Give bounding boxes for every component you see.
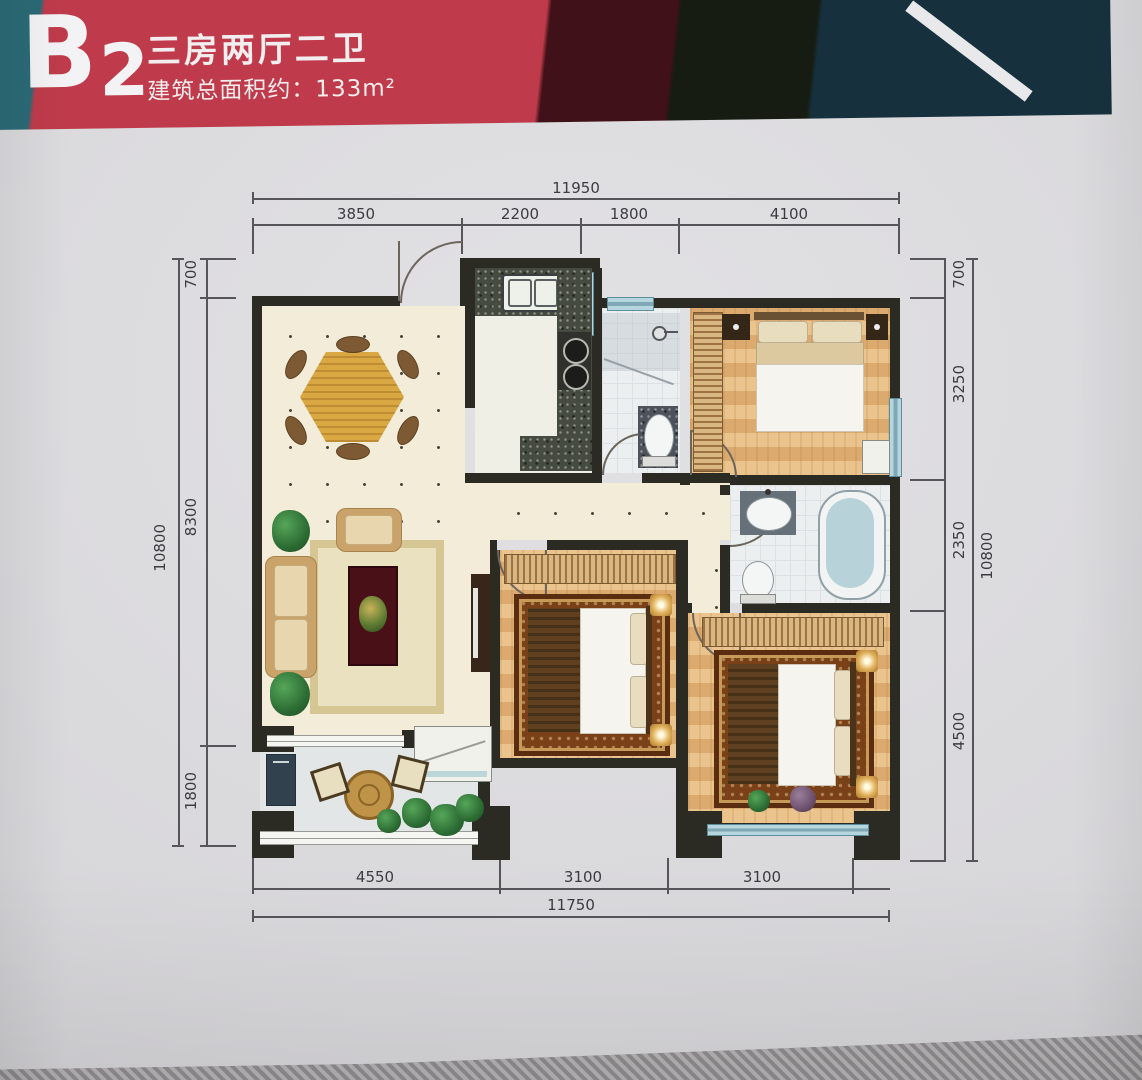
dim-tick bbox=[966, 860, 978, 862]
bathtub-water bbox=[826, 498, 874, 588]
dim-tick bbox=[252, 910, 254, 922]
dim-label: 4550 bbox=[356, 868, 394, 886]
nightstand-lamp bbox=[856, 650, 878, 672]
dining-chair bbox=[336, 336, 370, 353]
toilet-icon bbox=[644, 414, 674, 460]
bed bbox=[756, 364, 864, 432]
burner bbox=[563, 364, 589, 390]
dim-tick bbox=[172, 845, 184, 847]
wardrobe bbox=[504, 554, 676, 584]
wall bbox=[465, 268, 475, 408]
bed bbox=[778, 664, 836, 786]
cabinet-line bbox=[273, 761, 289, 763]
dim-tick bbox=[200, 297, 236, 299]
dim-tick bbox=[910, 297, 946, 299]
wardrobe bbox=[702, 617, 884, 647]
dim-label: 4500 bbox=[950, 712, 968, 750]
nightstand-lamp bbox=[856, 776, 878, 798]
wall bbox=[465, 473, 602, 483]
bathtub-icon bbox=[818, 490, 886, 600]
dim-tick bbox=[910, 479, 946, 481]
dim-tick bbox=[252, 218, 254, 254]
door-leaf bbox=[690, 430, 692, 475]
wall bbox=[490, 540, 497, 550]
dim-label: 1800 bbox=[610, 205, 648, 223]
dim-label: 3250 bbox=[950, 365, 968, 403]
nightstand bbox=[866, 314, 888, 340]
dim-tick bbox=[910, 860, 946, 862]
wall bbox=[720, 545, 730, 613]
dim-tick bbox=[200, 845, 236, 847]
pillow bbox=[812, 321, 862, 343]
table-flowers-icon bbox=[359, 596, 387, 632]
dim-tick bbox=[888, 910, 890, 922]
dim-label: 11750 bbox=[547, 896, 595, 914]
wall bbox=[730, 475, 900, 485]
wall bbox=[890, 308, 900, 860]
dim-line bbox=[972, 258, 974, 862]
sofa-cushion bbox=[274, 565, 308, 617]
dim-label: 3850 bbox=[337, 205, 375, 223]
dim-label: 10800 bbox=[151, 524, 169, 572]
dim-label: 11950 bbox=[552, 179, 600, 197]
bed-blanket bbox=[756, 342, 864, 366]
kitchen-sink bbox=[502, 274, 562, 312]
mini-hallway bbox=[688, 540, 720, 613]
dim-tick bbox=[252, 192, 254, 204]
armchair bbox=[336, 508, 402, 552]
balcony-sliding-door bbox=[267, 735, 404, 747]
wall bbox=[676, 540, 688, 835]
armchair-cushion bbox=[345, 515, 393, 545]
dim-line bbox=[252, 888, 890, 890]
pillow bbox=[758, 321, 808, 343]
bed-headboard bbox=[754, 312, 864, 320]
plant-icon bbox=[748, 790, 770, 812]
lamp-icon bbox=[733, 324, 739, 330]
dim-label: 2200 bbox=[501, 205, 539, 223]
burner bbox=[563, 338, 589, 364]
wall bbox=[720, 485, 730, 495]
tv-icon bbox=[473, 588, 478, 658]
dim-tick bbox=[200, 745, 236, 747]
area-label: 建筑总面积约：133m² bbox=[147, 68, 396, 105]
dim-label: 2350 bbox=[950, 521, 968, 559]
unit-code-letter: B bbox=[20, 3, 98, 104]
plant-icon bbox=[402, 798, 432, 828]
wardrobe bbox=[693, 312, 723, 472]
sofa-cushion bbox=[274, 619, 308, 671]
corridor bbox=[490, 483, 730, 540]
dim-tick bbox=[966, 258, 978, 260]
coffee-table bbox=[348, 566, 398, 666]
dim-line bbox=[252, 224, 900, 226]
faucet-icon bbox=[765, 489, 771, 495]
dim-tick bbox=[898, 218, 900, 254]
nightstand-lamp bbox=[650, 724, 672, 746]
dim-label: 8300 bbox=[182, 498, 200, 536]
bay-window-line bbox=[418, 740, 485, 764]
entry-door-arc bbox=[400, 241, 462, 303]
bed-blanket bbox=[528, 608, 580, 732]
dim-line bbox=[252, 198, 900, 200]
dim-label: 10800 bbox=[978, 532, 996, 580]
dim-label: 700 bbox=[182, 260, 200, 289]
dim-label: 3100 bbox=[743, 868, 781, 886]
bed-blanket bbox=[728, 664, 778, 784]
window bbox=[707, 824, 869, 836]
toilet-tank bbox=[642, 456, 676, 467]
balcony-cabinet bbox=[266, 754, 296, 806]
pouf-icon bbox=[790, 786, 816, 812]
plant-icon bbox=[377, 809, 401, 833]
kitchen-counter bbox=[520, 436, 592, 471]
entry-door-leaf bbox=[398, 241, 400, 301]
toilet-tank bbox=[740, 594, 776, 604]
dim-label: 1800 bbox=[182, 772, 200, 810]
wall bbox=[252, 296, 262, 745]
dim-tick bbox=[200, 258, 236, 260]
header-banner: B 2 三房两厅二卫 建筑总面积约：133m² bbox=[0, 0, 1112, 130]
bed-headboard bbox=[646, 606, 652, 734]
sink-basin bbox=[508, 279, 532, 307]
dim-line bbox=[178, 258, 180, 846]
floorplan-photo-page: B 2 三房两厅二卫 建筑总面积约：133m² 11950 3850 2200 … bbox=[0, 0, 1142, 1080]
dim-label: 4100 bbox=[770, 205, 808, 223]
shower-head-icon bbox=[652, 326, 667, 341]
wall-niche bbox=[862, 440, 890, 474]
wall bbox=[547, 540, 688, 550]
dim-tick bbox=[580, 218, 582, 254]
dim-tick bbox=[910, 610, 946, 612]
dim-tick bbox=[910, 258, 946, 260]
unit-code-number: 2 bbox=[99, 34, 150, 107]
diagonal-stripe-decoration bbox=[905, 1, 1032, 102]
lamp-icon bbox=[874, 324, 880, 330]
plant-icon bbox=[270, 672, 310, 716]
layout-title: 三房两厅二卫 bbox=[146, 21, 369, 73]
wall bbox=[742, 603, 900, 613]
table-plate bbox=[358, 784, 380, 806]
dim-line bbox=[206, 258, 208, 846]
wall bbox=[252, 296, 400, 306]
bay-window-glass bbox=[417, 771, 487, 777]
window bbox=[607, 297, 654, 311]
stove bbox=[558, 332, 591, 390]
nightstand-lamp bbox=[650, 594, 672, 616]
dim-line bbox=[252, 916, 890, 918]
shower-arm bbox=[664, 331, 678, 333]
plant-icon bbox=[272, 510, 310, 552]
sink-basin bbox=[534, 279, 558, 307]
tv-console bbox=[471, 574, 490, 672]
washbasin-icon bbox=[746, 497, 792, 531]
photo-background-texture bbox=[0, 1022, 1142, 1080]
dim-line bbox=[944, 258, 946, 862]
plant-icon bbox=[456, 794, 484, 822]
wall bbox=[460, 258, 600, 268]
dim-tick bbox=[252, 858, 254, 894]
dim-tick bbox=[898, 192, 900, 204]
dim-label: 700 bbox=[950, 260, 968, 289]
dim-tick bbox=[499, 858, 501, 894]
wall bbox=[688, 603, 692, 613]
bed-headboard bbox=[850, 662, 856, 786]
wall bbox=[490, 758, 688, 768]
dining-chair bbox=[336, 443, 370, 460]
dim-tick bbox=[678, 218, 680, 254]
sofa bbox=[265, 556, 317, 678]
dim-tick bbox=[852, 858, 854, 894]
dim-label: 3100 bbox=[564, 868, 602, 886]
nightstand bbox=[722, 314, 750, 340]
floor-plan bbox=[252, 258, 900, 862]
window bbox=[889, 398, 902, 477]
dim-tick bbox=[667, 858, 669, 894]
